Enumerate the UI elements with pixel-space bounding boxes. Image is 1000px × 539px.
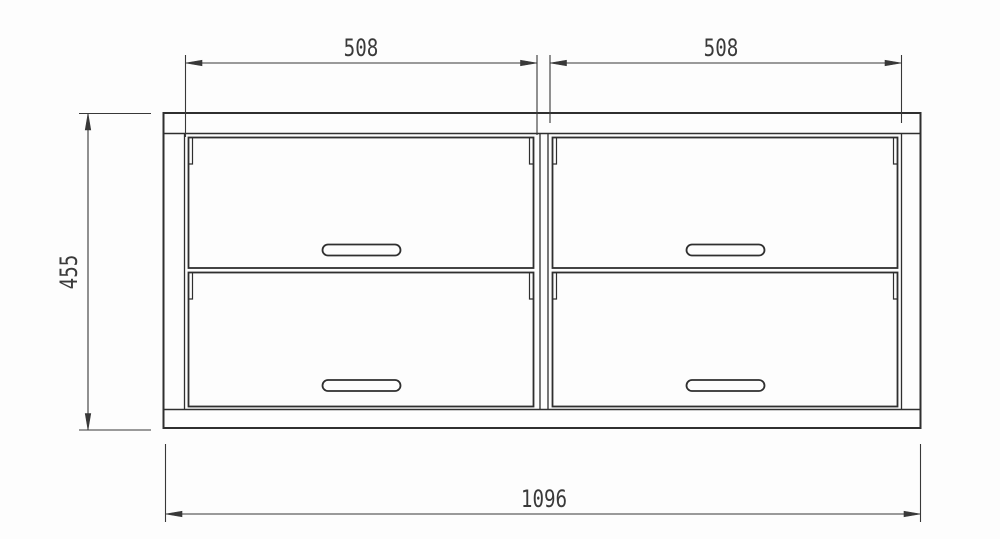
dimension-drawer-width-left (186, 55, 538, 137)
dimension-label-drawer-width-left: 508 (344, 36, 379, 60)
drawer-handle (687, 245, 765, 256)
arrowhead-left (550, 60, 567, 66)
cabinet-technical-drawing: 508 508 455 1096 (0, 0, 1000, 539)
drawer-handle (323, 380, 401, 391)
dimension-label-drawer-width-right: 508 (704, 36, 739, 60)
drawer-top-right (553, 138, 898, 269)
drawer-bottom-right (553, 273, 898, 407)
drawing-linework (0, 0, 1000, 539)
arrowhead-bottom (85, 414, 91, 431)
dimension-overall-height (79, 114, 151, 431)
arrowhead-right (885, 60, 902, 66)
dimension-label-overall-height: 455 (57, 255, 81, 290)
arrowhead-right (904, 511, 921, 517)
drawer-front (553, 273, 898, 407)
dimension-label-overall-width: 1096 (521, 487, 567, 511)
arrowhead-right (521, 60, 538, 66)
arrowhead-top (85, 114, 91, 131)
drawer-handle (687, 380, 765, 391)
drawer-handle (323, 245, 401, 256)
arrowhead-left (186, 60, 203, 66)
drawer-bottom-left (189, 273, 534, 407)
cabinet (164, 113, 921, 428)
drawer-front (189, 273, 534, 407)
arrowhead-left (166, 511, 183, 517)
cabinet-outline (164, 113, 921, 428)
drawer-front (189, 138, 534, 269)
drawer-front (553, 138, 898, 269)
drawer-top-left (189, 138, 534, 269)
